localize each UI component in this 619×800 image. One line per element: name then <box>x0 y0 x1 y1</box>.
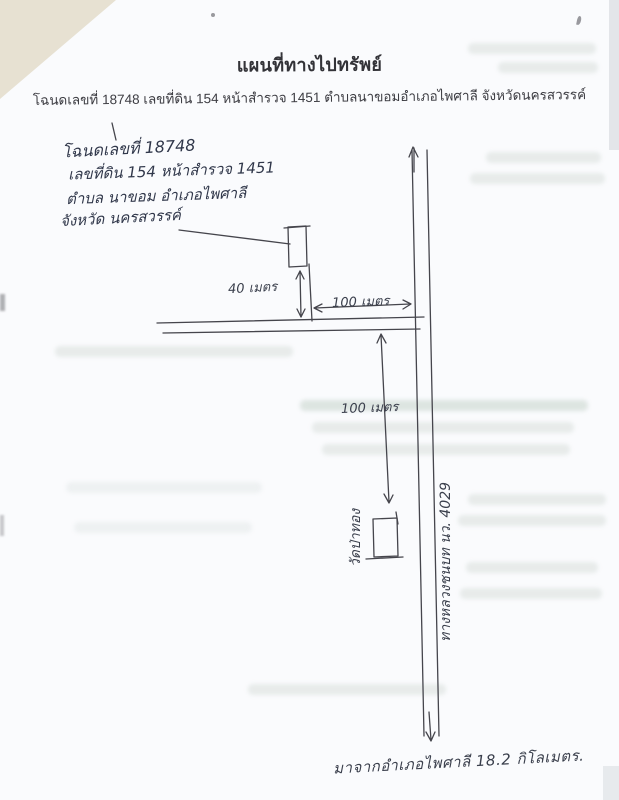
temple-bottom-tick <box>366 557 403 559</box>
hand-drawn-map <box>0 0 619 800</box>
scanned-document-page: แผนที่ทางไปทรัพย์ โฉนดเลขที่ 18748 เลขที… <box>0 0 619 800</box>
road-direction-arrow-down-icon <box>426 712 435 741</box>
road-direction-arrow-up-icon <box>409 147 418 172</box>
property-plot-rectangle <box>288 226 307 267</box>
pen-tick <box>112 123 116 140</box>
plot-pointer-line <box>179 230 290 244</box>
distance-arrow-40m-icon <box>296 271 305 317</box>
access-lane-line <box>309 264 312 321</box>
vertical-road-right-line <box>427 150 439 736</box>
horizontal-road-top-line <box>157 317 424 323</box>
distance-label-40m: 40 เมตร <box>227 276 277 300</box>
vertical-road-left-line <box>412 150 424 736</box>
distance-arrow-100m-vertical-icon <box>377 334 393 503</box>
temple-building-rectangle <box>373 518 398 557</box>
horizontal-road-bottom-line <box>163 329 420 333</box>
highway-label: ทางหลวงชนบท นว. 4029 <box>435 476 457 648</box>
temple-label: วัดป่าทอง <box>345 482 367 594</box>
distance-label-100m-vertical: 100 เมตร <box>341 396 399 419</box>
distance-label-100m-horizontal: 100 เมตร <box>332 290 390 313</box>
